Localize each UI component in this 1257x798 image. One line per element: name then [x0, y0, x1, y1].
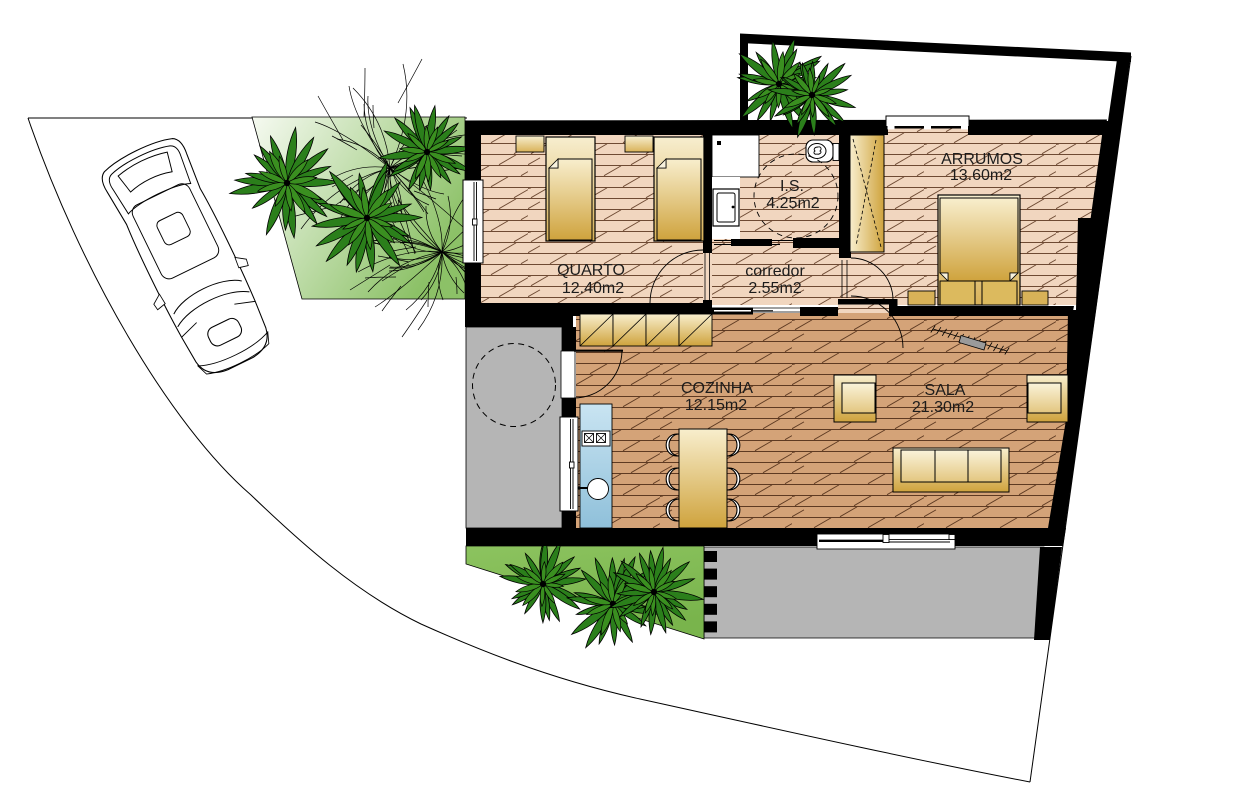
- svg-text:12.15m2: 12.15m2: [685, 397, 747, 414]
- svg-text:QUARTO: QUARTO: [557, 262, 625, 279]
- svg-text:13.60m2: 13.60m2: [950, 167, 1012, 184]
- svg-text:COZINHA: COZINHA: [681, 380, 753, 397]
- svg-text:I.S.: I.S.: [780, 178, 804, 195]
- svg-text:12.40m2: 12.40m2: [562, 280, 624, 297]
- svg-text:4.25m2: 4.25m2: [766, 195, 819, 212]
- svg-text:ARRUMOS: ARRUMOS: [941, 151, 1023, 168]
- svg-text:corredor: corredor: [745, 263, 805, 280]
- svg-text:2.55m2: 2.55m2: [748, 280, 801, 297]
- svg-text:SALA: SALA: [925, 382, 966, 399]
- svg-text:21.30m2: 21.30m2: [912, 399, 974, 416]
